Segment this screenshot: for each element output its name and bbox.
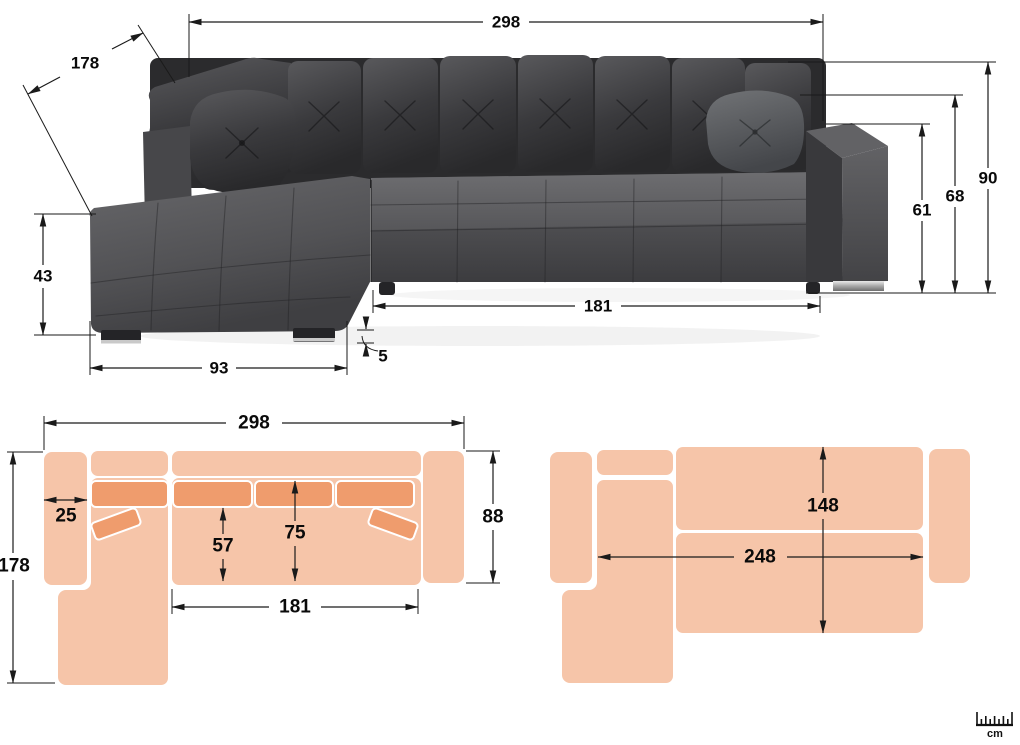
dim-armrest-height: 61 (913, 124, 932, 293)
plan-body-depth-label: 88 (482, 507, 503, 528)
bed-mattress-length-label: 248 (744, 547, 776, 568)
ruler-ticks (977, 712, 1012, 724)
unit-ruler: cm (976, 712, 1013, 740)
plan-shapes (44, 451, 464, 685)
dim-armrest-height-label: 61 (913, 201, 932, 220)
plan-back-strip-main (172, 451, 421, 476)
leg (379, 282, 395, 295)
plan-seat-length-label: 181 (279, 597, 311, 618)
floor-shadow-2 (390, 288, 850, 302)
plan-dim-seat-length: 181 (172, 597, 418, 618)
plan-seat-depth-with-back-label: 75 (284, 523, 306, 544)
dim-total-depth: 178 (28, 33, 143, 94)
plan-seat-depth-label: 57 (212, 536, 233, 557)
seat-top (371, 172, 826, 230)
bed-left-armrest (550, 452, 592, 583)
right-armrest (806, 123, 888, 282)
chaise-body (90, 176, 371, 333)
dimension-diagram-canvas: 298 178 90 68 61 43 (0, 0, 1020, 745)
plan-total-depth-label: 178 (0, 556, 30, 577)
dim-seat-height: 43 (34, 214, 53, 335)
main-seat-section (371, 172, 826, 282)
dim-chaise-width: 93 (90, 359, 347, 378)
floor-plan-diagram: 298 178 25 57 75 181 88 (0, 413, 504, 686)
plan-right-armrest (423, 451, 464, 583)
right-throw-pillow (706, 90, 804, 172)
pillow-button (239, 140, 245, 146)
dim-total-depth-label: 178 (71, 54, 99, 73)
dim-total-width-label: 298 (492, 13, 520, 32)
bed-back-strip (597, 450, 673, 475)
plan-cushion (173, 481, 252, 507)
dim-seat-height-label: 43 (34, 267, 53, 286)
dim-chaise-width-label: 93 (210, 359, 229, 378)
armrest-chrome-base (833, 281, 884, 291)
left-throw-pillow (190, 90, 296, 194)
unit-label: cm (987, 728, 1003, 740)
plan-total-width-label: 298 (238, 413, 270, 434)
pillow-button (752, 129, 757, 134)
leg-chrome (293, 338, 335, 342)
leg-chrome (101, 340, 141, 344)
dim-seat-length-label: 181 (584, 297, 612, 316)
dim-back-height-label: 90 (979, 169, 998, 188)
dim-total-width: 298 (189, 13, 823, 32)
plan-dim-total-width: 298 (44, 413, 464, 434)
dim-leg-height-label: 5 (378, 347, 387, 366)
chaise-section (90, 176, 371, 333)
bed-mattress-width-label: 148 (807, 496, 839, 517)
armrest-outer-face (842, 146, 888, 282)
plan-dim-body-depth: 88 (482, 451, 503, 583)
dim-cushion-height-label: 68 (946, 187, 965, 206)
dim-back-height: 90 (979, 62, 998, 293)
bed-mattress-lower (676, 533, 923, 633)
product-dimension-sheet: 298 178 90 68 61 43 (0, 0, 1020, 745)
plan-cushion (91, 481, 168, 507)
bed-plan-diagram: 148 248 (550, 447, 970, 683)
plan-back-strip-chaise (91, 451, 168, 476)
back-cushion (288, 61, 361, 174)
plan-armrest-width-label: 25 (55, 506, 77, 527)
sofa-photo (90, 55, 889, 346)
dim-cushion-height: 68 (946, 95, 965, 293)
leg (806, 282, 820, 294)
bed-mattress-upper (676, 447, 923, 530)
bed-right-armrest (929, 449, 970, 583)
plan-cushion (255, 481, 333, 507)
plan-dim-total-depth: 178 (0, 452, 30, 683)
plan-cushion (336, 481, 414, 507)
